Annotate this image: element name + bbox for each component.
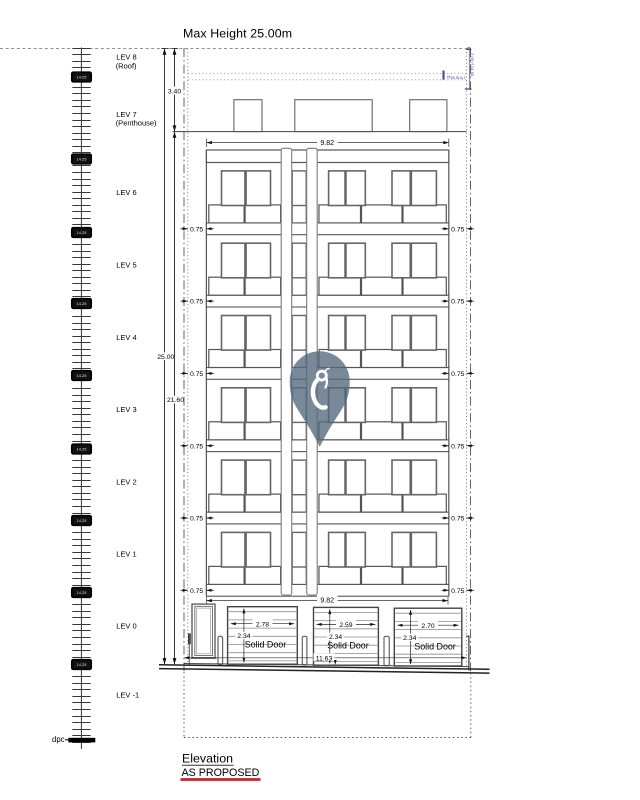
svg-text:Solid Door: Solid Door	[414, 642, 455, 652]
svg-text:0.75: 0.75	[451, 371, 464, 378]
svg-text:Solid Door: Solid Door	[245, 640, 286, 650]
svg-text:This is a r: This is a r	[447, 75, 466, 80]
svg-text:dpc: dpc	[52, 735, 65, 744]
svg-text:14.25: 14.25	[76, 75, 87, 80]
svg-text:(Penthouse): (Penthouse)	[116, 118, 157, 127]
svg-text:0.75: 0.75	[190, 226, 203, 233]
svg-text:14.25: 14.25	[76, 157, 87, 162]
svg-text:2.78: 2.78	[256, 621, 269, 628]
svg-text:LEV 6: LEV 6	[116, 188, 136, 197]
svg-text:Solid Door: Solid Door	[327, 641, 368, 651]
svg-text:LEV 8: LEV 8	[116, 53, 136, 62]
svg-text:0.75: 0.75	[451, 226, 464, 233]
svg-text:Max Height 25.00m: Max Height 25.00m	[183, 27, 292, 41]
svg-text:LEV 2: LEV 2	[116, 477, 136, 486]
svg-text:0.75: 0.75	[451, 299, 464, 306]
svg-text:LEV 5: LEV 5	[116, 261, 136, 270]
svg-text:0.75: 0.75	[451, 443, 464, 450]
svg-text:9.82: 9.82	[320, 140, 334, 147]
svg-text:14.25: 14.25	[76, 590, 87, 595]
svg-text:11.63: 11.63	[316, 655, 333, 662]
svg-text:AS PROPOSED: AS PROPOSED	[182, 767, 260, 779]
svg-text:2.59: 2.59	[339, 622, 352, 629]
svg-text:14.25: 14.25	[76, 230, 87, 235]
svg-text:(Roof): (Roof)	[116, 61, 137, 70]
svg-text:25.00: 25.00	[157, 354, 174, 361]
svg-text:LEV 3: LEV 3	[116, 405, 136, 414]
svg-text:2.05 rl 24.60: 2.05 rl 24.60	[470, 53, 475, 77]
svg-text:2.70: 2.70	[421, 623, 434, 630]
svg-text:Elevation: Elevation	[182, 752, 233, 766]
svg-text:0.75: 0.75	[451, 588, 464, 595]
svg-text:0.75: 0.75	[190, 588, 203, 595]
svg-text:0.75: 0.75	[190, 516, 203, 523]
svg-text:21.60: 21.60	[167, 397, 184, 404]
svg-text:14.25: 14.25	[76, 662, 87, 667]
svg-text:14.25: 14.25	[76, 447, 87, 452]
svg-text:LEV 4: LEV 4	[116, 333, 136, 342]
svg-text:14.25: 14.25	[76, 301, 87, 306]
svg-text:0.75: 0.75	[190, 371, 203, 378]
svg-text:14.25: 14.25	[76, 518, 87, 523]
svg-text:LEV 1: LEV 1	[116, 550, 136, 559]
svg-text:LEV 0: LEV 0	[116, 622, 136, 631]
svg-text:0.75: 0.75	[190, 299, 203, 306]
svg-text:14.25: 14.25	[76, 373, 87, 378]
svg-text:0.75: 0.75	[451, 516, 464, 523]
svg-text:0.75: 0.75	[190, 443, 203, 450]
svg-text:LEV -1: LEV -1	[116, 691, 139, 700]
svg-text:9.82: 9.82	[320, 597, 334, 604]
svg-text:3.40: 3.40	[168, 88, 181, 95]
